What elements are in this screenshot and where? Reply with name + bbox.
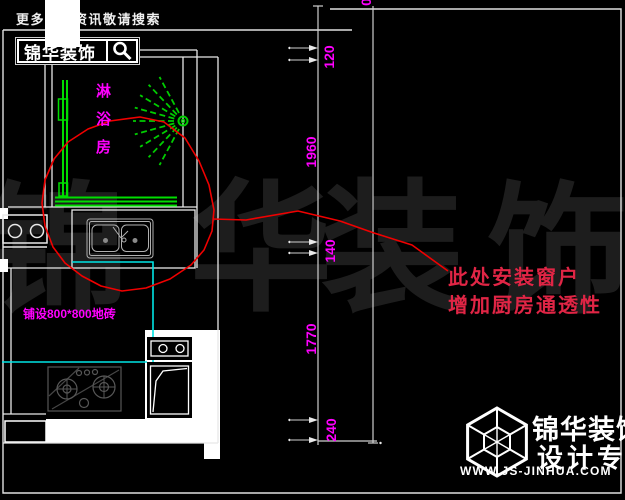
footer-website: WWW.JS-JINHUA.COM <box>460 464 612 478</box>
cad-drawing-canvas[interactable]: 锦 华 装 饰 <box>0 0 625 500</box>
hob-fixture <box>3 215 47 247</box>
annotation-text-line1: 此处安装窗户 <box>448 261 580 290</box>
dimension-value: 1770 <box>303 323 319 354</box>
dimension-value: 120 <box>321 45 337 68</box>
shower-door-symbol <box>59 80 68 198</box>
window-symbol <box>55 198 177 206</box>
disinfection-cabinet <box>147 337 192 360</box>
room-label: 淋浴房 <box>92 83 113 167</box>
dimension-lines <box>291 6 378 445</box>
oven-cabinet <box>147 362 192 418</box>
gas-stove <box>48 367 121 411</box>
tile-note: 铺设800*800地砖 <box>23 305 116 322</box>
dimension-value: 240 <box>323 418 339 441</box>
dimension-value: 1960 <box>303 136 319 167</box>
promo-search-text: 更多装修资讯敬请搜索 <box>16 9 161 28</box>
kitchen-sink <box>87 219 153 258</box>
wall-pier-block <box>5 421 46 442</box>
white-cover-patch <box>45 0 80 47</box>
search-icon <box>106 41 136 61</box>
dimension-value: 140 <box>322 239 338 262</box>
annotation-text-line2: 增加厨房通透性 <box>448 289 602 318</box>
dimension-value-clipped: 0 <box>358 0 374 6</box>
